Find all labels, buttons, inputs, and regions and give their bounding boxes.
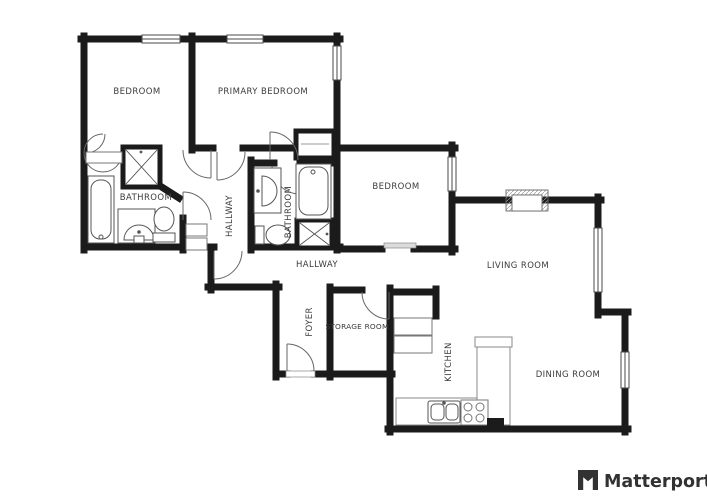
window-icon — [448, 157, 456, 191]
room-label-primary-bedroom: PRIMARY BEDROOM — [218, 87, 308, 97]
room-label-bathroom-1: BATHROOM — [120, 193, 172, 203]
bathtub-icon — [296, 164, 331, 219]
floor-plan-canvas: BEDROOM PRIMARY BEDROOM BATHROOM HALLWAY… — [0, 0, 707, 500]
window-icon — [594, 228, 602, 292]
stove-icon — [461, 400, 488, 425]
room-label-foyer: FOYER — [305, 307, 315, 337]
room-label-dining-room: DINING ROOM — [536, 370, 601, 380]
room-label-bathroom-2: BATHROOM — [284, 186, 294, 238]
window-icon — [333, 46, 341, 80]
matterport-logo: Matterport — [578, 470, 707, 492]
sink-icon — [118, 209, 155, 243]
open-passage-sill — [384, 243, 416, 248]
matterport-wordmark: Matterport — [604, 472, 707, 492]
toilet-icon — [153, 207, 175, 242]
shelf-icon — [86, 152, 122, 163]
room-label-kitchen: KITCHEN — [444, 342, 454, 382]
room-label-storage-room: STORAGE ROOM — [325, 322, 388, 331]
window-icon — [621, 352, 629, 388]
shelf-icon — [394, 318, 432, 353]
window-icon — [142, 35, 180, 43]
shower-icon — [123, 147, 160, 187]
sink-icon — [254, 168, 281, 213]
closet-block — [296, 131, 334, 158]
room-label-living-room: LIVING ROOM — [487, 261, 549, 271]
room-label-hallway-1: HALLWAY — [225, 195, 235, 237]
room-label-bedroom-1: BEDROOM — [113, 87, 160, 97]
shower-icon — [297, 220, 332, 248]
room-label-hallway-2: HALLWAY — [296, 260, 338, 270]
bathtub-icon — [88, 176, 114, 243]
floor-plan: BEDROOM PRIMARY BEDROOM BATHROOM HALLWAY… — [0, 0, 707, 500]
wall-stub — [487, 418, 504, 429]
fireplace-icon — [506, 190, 548, 211]
entry-threshold — [286, 371, 315, 377]
kitchen-sink-icon — [428, 401, 460, 423]
room-label-bedroom-2: BEDROOM — [372, 182, 419, 192]
window-icon — [227, 35, 263, 43]
